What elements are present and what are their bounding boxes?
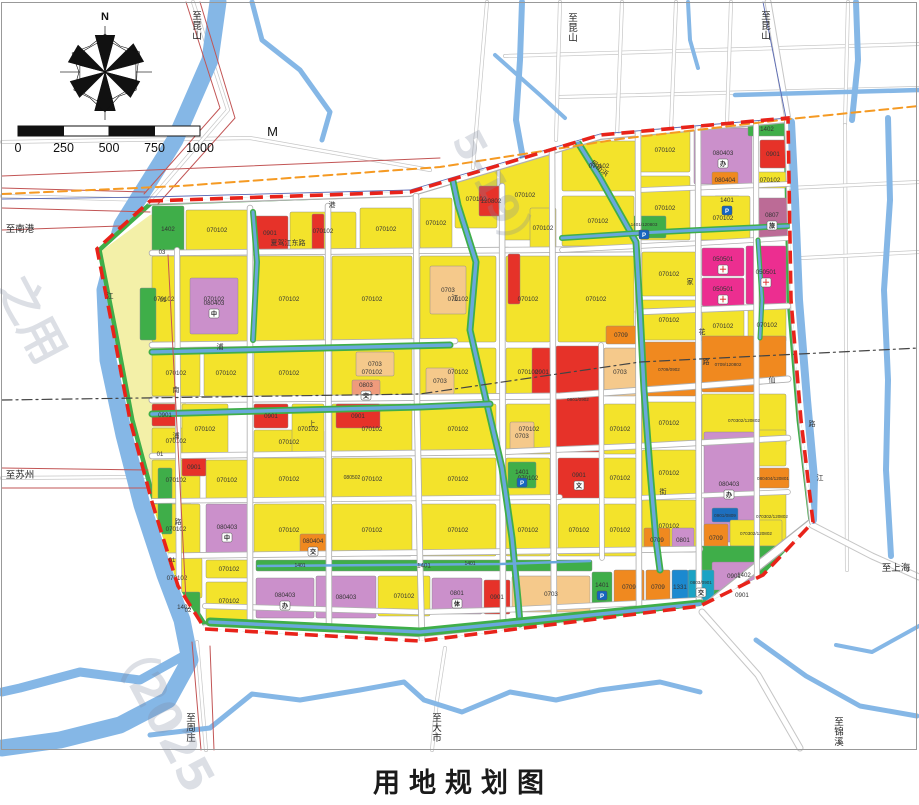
scale-unit: M: [267, 124, 278, 139]
parcel-code: 0801: [676, 537, 690, 544]
scale-segment: [64, 126, 110, 136]
land-use-plan-screenshot: 070102070102120802070102070102080403办080…: [0, 0, 919, 805]
edge-destination-label: 至昆山: [761, 11, 771, 42]
parcel-code: 050501: [756, 269, 777, 276]
parcel-code: 0709: [650, 537, 664, 544]
parcel-code: 080403: [217, 524, 238, 531]
icon-glyph: 旅: [768, 222, 775, 230]
road-inner: [698, 124, 699, 610]
parcel-code: 1401: [515, 469, 529, 476]
north-label: N: [101, 11, 109, 23]
icon-glyph: ＋: [762, 278, 770, 287]
road-name-label: 01: [169, 558, 176, 564]
parcel-code: 0703: [515, 433, 529, 440]
parcel-code: 0709/0902: [658, 367, 680, 372]
map-title: 用地规划图: [373, 761, 553, 800]
parcel-code: 1401: [720, 197, 734, 204]
edge-destination-label: 至上海: [882, 562, 911, 574]
parcel-code: 070102: [610, 527, 631, 534]
parcel-code: 070102: [217, 477, 238, 484]
icon-glyph: 体: [454, 600, 461, 608]
road-name-label: 1401: [464, 561, 475, 567]
road-name-label: 02: [185, 608, 192, 614]
icon-glyph: ＋: [719, 265, 727, 274]
icon-glyph: P: [642, 233, 646, 239]
parcel-code: 070102: [659, 271, 680, 278]
parcel-code: 070102: [713, 215, 734, 222]
parcel-code: 0901: [187, 464, 201, 471]
parcel-code: 080404: [715, 177, 736, 184]
parcel-code: 0901: [264, 413, 278, 420]
parcel-code: 050501: [713, 256, 734, 263]
parcel-code: 070102: [659, 523, 680, 530]
parcel-code: 0901: [727, 573, 741, 580]
road-name-label: 江: [107, 292, 114, 300]
parcel: [758, 336, 786, 380]
road-name-label: 路: [175, 517, 182, 526]
parcel-code: 080403: [719, 481, 740, 488]
parcel-code: 0709: [614, 332, 628, 339]
parcel-code: 080403: [275, 592, 296, 599]
road-name-label: 港: [329, 200, 336, 209]
parcel-code: 070102: [219, 598, 240, 605]
icon-glyph: 办: [720, 160, 726, 168]
parcel-code: 070302/120802: [740, 531, 772, 536]
parcel-code: 0803: [359, 382, 373, 389]
parcel-code: 1402: [760, 126, 774, 133]
parcel-code: 1401: [595, 582, 609, 589]
parcel-code: 1401/120803: [631, 222, 658, 227]
parcel-code: 070102: [362, 476, 383, 483]
parcel-code: 070102: [610, 426, 631, 433]
parcel-code: 1401: [417, 563, 431, 570]
scale-tick-label: 250: [53, 141, 74, 155]
icon-glyph: ＋: [719, 295, 727, 304]
icon-glyph: 办: [282, 602, 288, 610]
parcel-code: 070102: [279, 527, 300, 534]
icon-glyph: P: [520, 481, 524, 487]
road-name-label: 江: [452, 294, 459, 302]
road-inner: [601, 345, 602, 558]
scale-tick-label: 500: [99, 141, 120, 155]
parcel-code: 070102: [569, 527, 590, 534]
road-name-label: 花: [699, 327, 706, 336]
parcel-code: 070102: [448, 369, 469, 376]
parcel-code: 070102: [219, 566, 240, 573]
parcel-code: 070102: [166, 526, 187, 533]
parcel-code: 070102: [533, 225, 554, 232]
parcel-code: 070102: [518, 296, 539, 303]
parcel-code: 070102: [610, 475, 631, 482]
road-name-label: 01: [160, 298, 167, 304]
road-name-label: 1401: [294, 563, 305, 569]
parcel-code: 1402: [161, 226, 175, 233]
parcel-code: 080404: [303, 538, 324, 545]
parcel-code: 0901/0902: [567, 397, 589, 402]
parcel-code: 070102: [279, 296, 300, 303]
road-name-label: 路: [703, 357, 710, 366]
parcel-code: 070102: [659, 317, 680, 324]
parcel-code: 070102: [713, 323, 734, 330]
parcel-code: 070102: [515, 192, 536, 199]
scale-segment: [109, 126, 155, 136]
parcel-code: 070102: [659, 420, 680, 427]
edge-destination-label: 至苏州: [6, 469, 35, 481]
parcel-code: 070102: [394, 593, 415, 600]
edge-destination-label: 至周庄: [186, 713, 196, 744]
road-name-label: 浦: [217, 342, 224, 351]
scale-tick-label: 750: [144, 141, 165, 155]
parcel-code: 0703: [441, 287, 455, 294]
parcel-code: 070102: [757, 322, 778, 329]
parcel-code: 0901: [735, 592, 749, 599]
road-name-label: 街: [660, 487, 667, 496]
road-name-label: 夏驾江东路: [271, 238, 306, 247]
parcel-code: 070102: [166, 477, 187, 484]
parcel-code: 0901: [263, 230, 277, 237]
icon-glyph: 办: [726, 491, 732, 499]
edge-destination-label: 至南港: [6, 223, 35, 235]
parcel-code: 070102: [519, 426, 540, 433]
road-name-label: 江: [817, 474, 824, 482]
parcel-code: 0901: [572, 472, 586, 479]
parcel-code: 0901: [766, 151, 780, 158]
edge-destination-label: 至昆山: [192, 11, 202, 42]
parcel-code: 0801: [450, 590, 464, 597]
road-name-label: 南: [173, 385, 180, 394]
parcel-code: 0703: [433, 378, 447, 385]
parcel-code: 0901: [490, 594, 504, 601]
parcel-code: 0709: [709, 535, 723, 542]
edge-destination-label: 至大市: [432, 713, 442, 744]
icon-glyph: 文: [575, 482, 583, 490]
parcel-code: 070102: [659, 470, 680, 477]
parcel-code: 070102: [588, 218, 609, 225]
parcel-code: 070102: [279, 476, 300, 483]
road-name-label: 浦: [173, 431, 180, 440]
icon-glyph: 中: [224, 534, 230, 542]
road-name-label: 03: [159, 250, 166, 256]
parcel-code: 070102: [195, 426, 216, 433]
icon-glyph: 交: [310, 548, 316, 556]
parcel-code: 070102: [448, 527, 469, 534]
parcel-code: 0709/120802: [715, 362, 742, 367]
parcel-code: 070302/120802: [756, 514, 788, 519]
road-name-label: 路: [809, 419, 816, 428]
scale-segment: [18, 126, 64, 136]
icon-glyph: 交: [363, 392, 369, 400]
parcel-code: 0901/0809: [714, 513, 736, 518]
parcel-code: 120802: [481, 198, 502, 205]
parcel-code: 070102: [166, 370, 187, 377]
parcel-code: 080403: [336, 594, 357, 601]
parcel-code: 070102: [760, 177, 781, 184]
scale-segment: [155, 126, 201, 136]
parcel-code: 0709: [651, 584, 665, 591]
road-name-label: 01: [157, 452, 164, 458]
scale-tick-label: 0: [15, 141, 22, 155]
parcel-code: 070102: [376, 226, 397, 233]
parcel-code: 070102: [362, 296, 383, 303]
edge-destination-label: 至锦溪: [834, 717, 844, 748]
road-inner: [328, 206, 329, 624]
parcel-code: 070102: [362, 426, 383, 433]
parcel-code: 1331: [673, 584, 687, 591]
parcel-code: 070102: [586, 296, 607, 303]
parcel-code: 070102: [518, 527, 539, 534]
parcel-code: 0803/0901: [690, 580, 712, 585]
road-name-label: 上: [309, 419, 316, 428]
icon-glyph: 交: [698, 589, 704, 597]
icon-glyph: 中: [211, 310, 217, 318]
parcel-code: 050501: [713, 286, 734, 293]
parcel-code: 0709: [622, 584, 636, 591]
parcel-code: 070102: [655, 205, 676, 212]
road-inner: [552, 140, 554, 622]
parcel-code: 0703: [368, 361, 382, 368]
edge-destination-label: 至昆山: [568, 13, 578, 44]
scale-tick-label: 1000: [186, 141, 214, 155]
parcel-code: 070102: [313, 228, 334, 235]
parcel-code: 070102: [448, 426, 469, 433]
parcel-code: 070102: [426, 220, 447, 227]
parcel-code: 070302/120802: [728, 418, 760, 423]
road-name-label: 仙: [769, 375, 776, 384]
parcel-code: 070102: [216, 370, 237, 377]
parcel-code: 070102: [207, 227, 228, 234]
parcel-code: 070102: [655, 147, 676, 154]
parcel-code: 080403: [713, 150, 734, 157]
parcel-code: 070102: [279, 370, 300, 377]
icon-glyph: P: [600, 594, 604, 600]
parcel-code: 0901: [351, 413, 365, 420]
road-name-label: 080502: [344, 475, 361, 481]
parcel-code: 0807: [765, 212, 779, 219]
road-name-label: 家: [687, 277, 694, 286]
parcel-code: 0703: [613, 369, 627, 376]
road-inner: [502, 186, 503, 626]
map-canvas: 070102070102120802070102070102080403办080…: [0, 0, 919, 805]
parcel-code: 080403: [204, 300, 225, 307]
parcel-code: 070102: [362, 369, 383, 376]
parcel-code: 070102: [362, 527, 383, 534]
parcel-code: 0901: [158, 412, 172, 419]
parcel-code: 070102: [448, 476, 469, 483]
parcel-code: 0703: [544, 591, 558, 598]
parcel-code: 080404/120801: [757, 476, 789, 481]
parcel-code: 070102: [279, 439, 300, 446]
road-inner: [638, 130, 639, 616]
